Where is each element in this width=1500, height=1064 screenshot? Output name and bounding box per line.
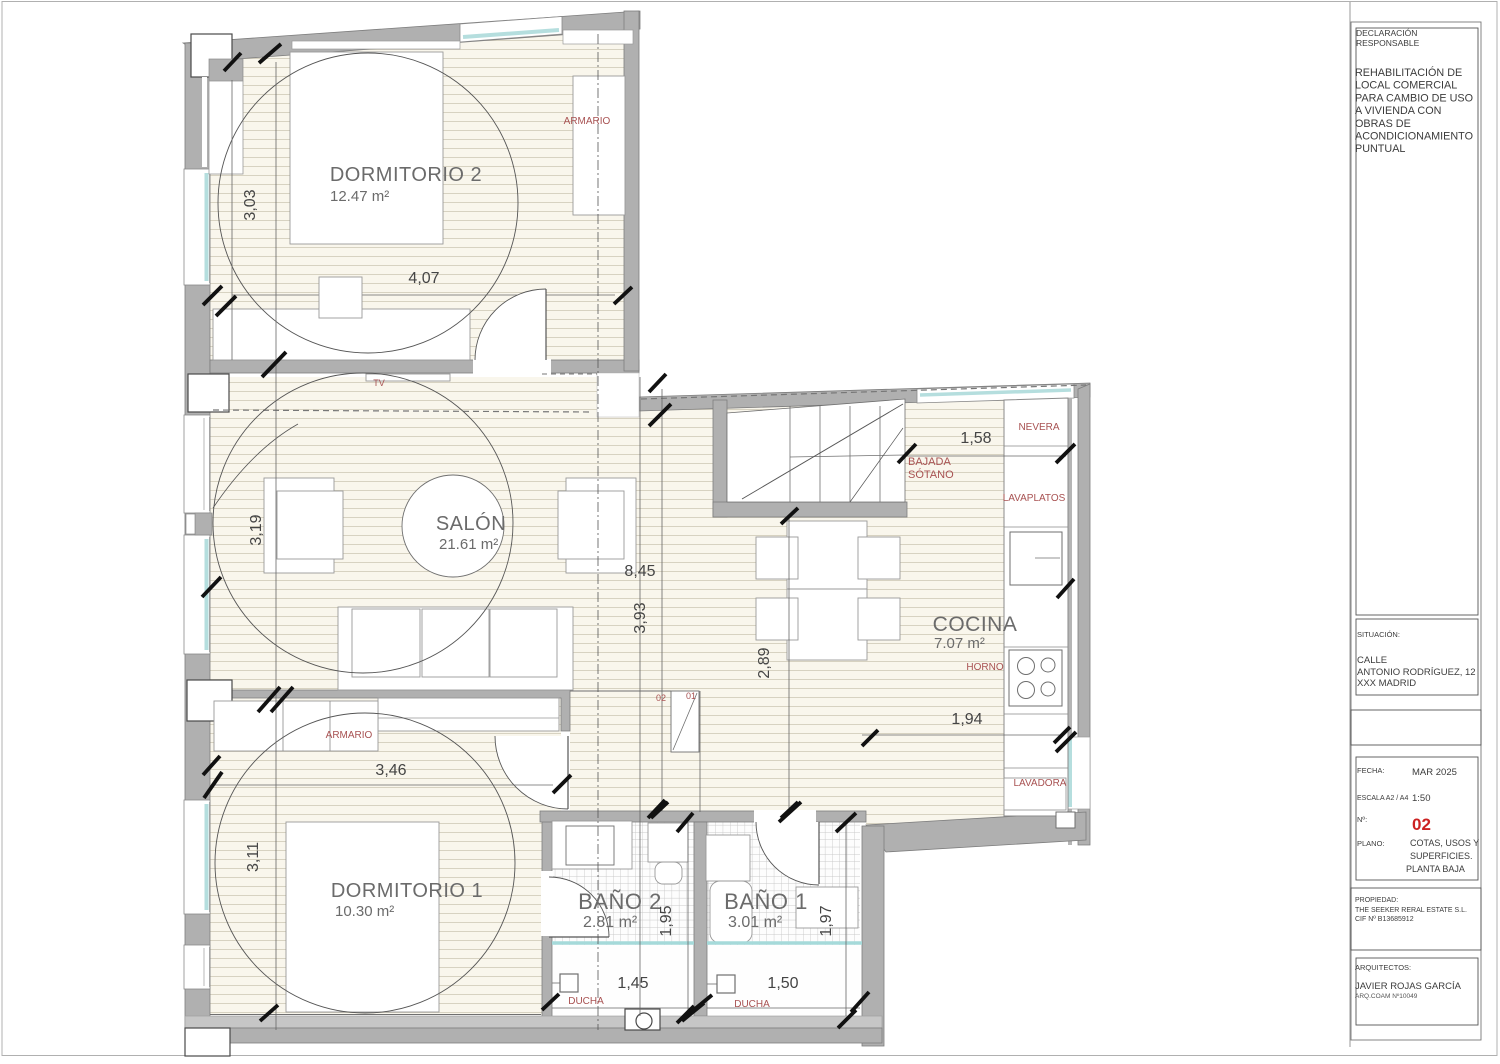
svg-text:3,11: 3,11 — [245, 842, 262, 872]
svg-text:ACONDICIONAMIENTO: ACONDICIONAMIENTO — [1355, 131, 1473, 143]
svg-text:3,03: 3,03 — [242, 189, 259, 220]
svg-text:SÓTANO: SÓTANO — [908, 468, 954, 481]
svg-text:REHABILITACIÓN DE: REHABILITACIÓN DE — [1355, 66, 1462, 79]
svg-text:ESCALA A2 / A4: ESCALA A2 / A4 — [1357, 795, 1408, 802]
svg-text:01: 01 — [686, 691, 696, 701]
svg-text:DORMITORIO 2: DORMITORIO 2 — [330, 164, 482, 186]
svg-text:1,58: 1,58 — [960, 430, 991, 447]
svg-text:PARA CAMBIO DE USO: PARA CAMBIO DE USO — [1355, 92, 1473, 104]
svg-text:1,45: 1,45 — [617, 975, 648, 992]
svg-text:1,95: 1,95 — [658, 905, 675, 936]
svg-text:CALLE: CALLE — [1357, 655, 1387, 666]
svg-text:XXX MADRID: XXX MADRID — [1357, 678, 1416, 689]
svg-text:ARQUITECTOS:: ARQUITECTOS: — [1355, 963, 1411, 972]
svg-text:PLANTA BAJA: PLANTA BAJA — [1406, 864, 1465, 874]
svg-text:DORMITORIO 1: DORMITORIO 1 — [331, 880, 483, 902]
svg-text:7.07 m²: 7.07 m² — [934, 635, 985, 652]
svg-text:PUNTUAL: PUNTUAL — [1355, 143, 1405, 155]
svg-text:COCINA: COCINA — [933, 613, 1018, 636]
svg-text:2,89: 2,89 — [756, 647, 773, 678]
svg-text:RESPONSABLE: RESPONSABLE — [1356, 38, 1420, 48]
svg-text:BAJADA: BAJADA — [908, 456, 951, 468]
svg-text:PLANO:: PLANO: — [1357, 839, 1385, 848]
svg-text:BAÑO 2: BAÑO 2 — [578, 889, 662, 914]
svg-text:DECLARACIÓN: DECLARACIÓN — [1356, 28, 1417, 38]
svg-text:8,45: 8,45 — [624, 563, 655, 580]
svg-text:02: 02 — [656, 693, 666, 703]
svg-text:BAÑO 1: BAÑO 1 — [724, 889, 808, 914]
svg-text:ANTONIO RODRÍGUEZ, 12: ANTONIO RODRÍGUEZ, 12 — [1357, 667, 1476, 678]
svg-text:THE SEEKER RERAL ESTATE S.L.: THE SEEKER RERAL ESTATE S.L. — [1355, 907, 1467, 914]
svg-text:SALÓN: SALÓN — [436, 512, 506, 535]
svg-text:JAVIER ROJAS GARCÍA: JAVIER ROJAS GARCÍA — [1355, 981, 1462, 992]
svg-text:HORNO: HORNO — [966, 662, 1003, 673]
svg-text:CIF Nº B13685912: CIF Nº B13685912 — [1355, 916, 1414, 923]
svg-text:ARMARIO: ARMARIO — [564, 116, 611, 127]
svg-text:LAVADORA: LAVADORA — [1014, 778, 1067, 789]
svg-text:3,46: 3,46 — [375, 762, 406, 779]
svg-text:ARQ.COAM Nº10049: ARQ.COAM Nº10049 — [1355, 993, 1418, 1000]
svg-text:DUCHA: DUCHA — [734, 999, 770, 1010]
svg-text:4,07: 4,07 — [408, 270, 439, 287]
svg-text:DUCHA: DUCHA — [568, 996, 604, 1007]
svg-text:MAR 2025: MAR 2025 — [1412, 767, 1457, 778]
svg-text:NEVERA: NEVERA — [1018, 422, 1059, 433]
svg-text:LAVAPLATOS: LAVAPLATOS — [1003, 493, 1066, 504]
svg-text:OBRAS DE: OBRAS DE — [1355, 118, 1411, 130]
svg-text:12.47 m²: 12.47 m² — [330, 188, 389, 205]
svg-text:FECHA:: FECHA: — [1357, 766, 1385, 775]
svg-text:1,50: 1,50 — [767, 975, 798, 992]
svg-text:2.81 m²: 2.81 m² — [583, 914, 638, 931]
svg-text:21.61 m²: 21.61 m² — [439, 536, 498, 553]
svg-text:1:50: 1:50 — [1412, 793, 1431, 804]
svg-text:SUPERFICIES.: SUPERFICIES. — [1410, 851, 1473, 861]
svg-text:3,19: 3,19 — [248, 514, 265, 545]
svg-text:1,97: 1,97 — [818, 905, 835, 936]
svg-text:3.01 m²: 3.01 m² — [728, 914, 783, 931]
svg-text:02: 02 — [1412, 815, 1431, 834]
svg-text:10.30 m²: 10.30 m² — [335, 903, 394, 920]
svg-text:ARMARIO: ARMARIO — [326, 730, 373, 741]
svg-text:A VIVIENDA CON: A VIVIENDA CON — [1355, 105, 1441, 117]
svg-text:Nº:: Nº: — [1357, 815, 1367, 824]
svg-text:3,93: 3,93 — [632, 602, 649, 633]
svg-text:LOCAL COMERCIAL: LOCAL COMERCIAL — [1355, 80, 1457, 92]
svg-text:COTAS, USOS Y: COTAS, USOS Y — [1410, 838, 1479, 848]
svg-text:PROPIEDAD:: PROPIEDAD: — [1355, 897, 1398, 904]
svg-text:1,94: 1,94 — [951, 711, 982, 728]
svg-text:TV: TV — [373, 378, 385, 388]
svg-text:SITUACIÓN:: SITUACIÓN: — [1357, 630, 1400, 639]
